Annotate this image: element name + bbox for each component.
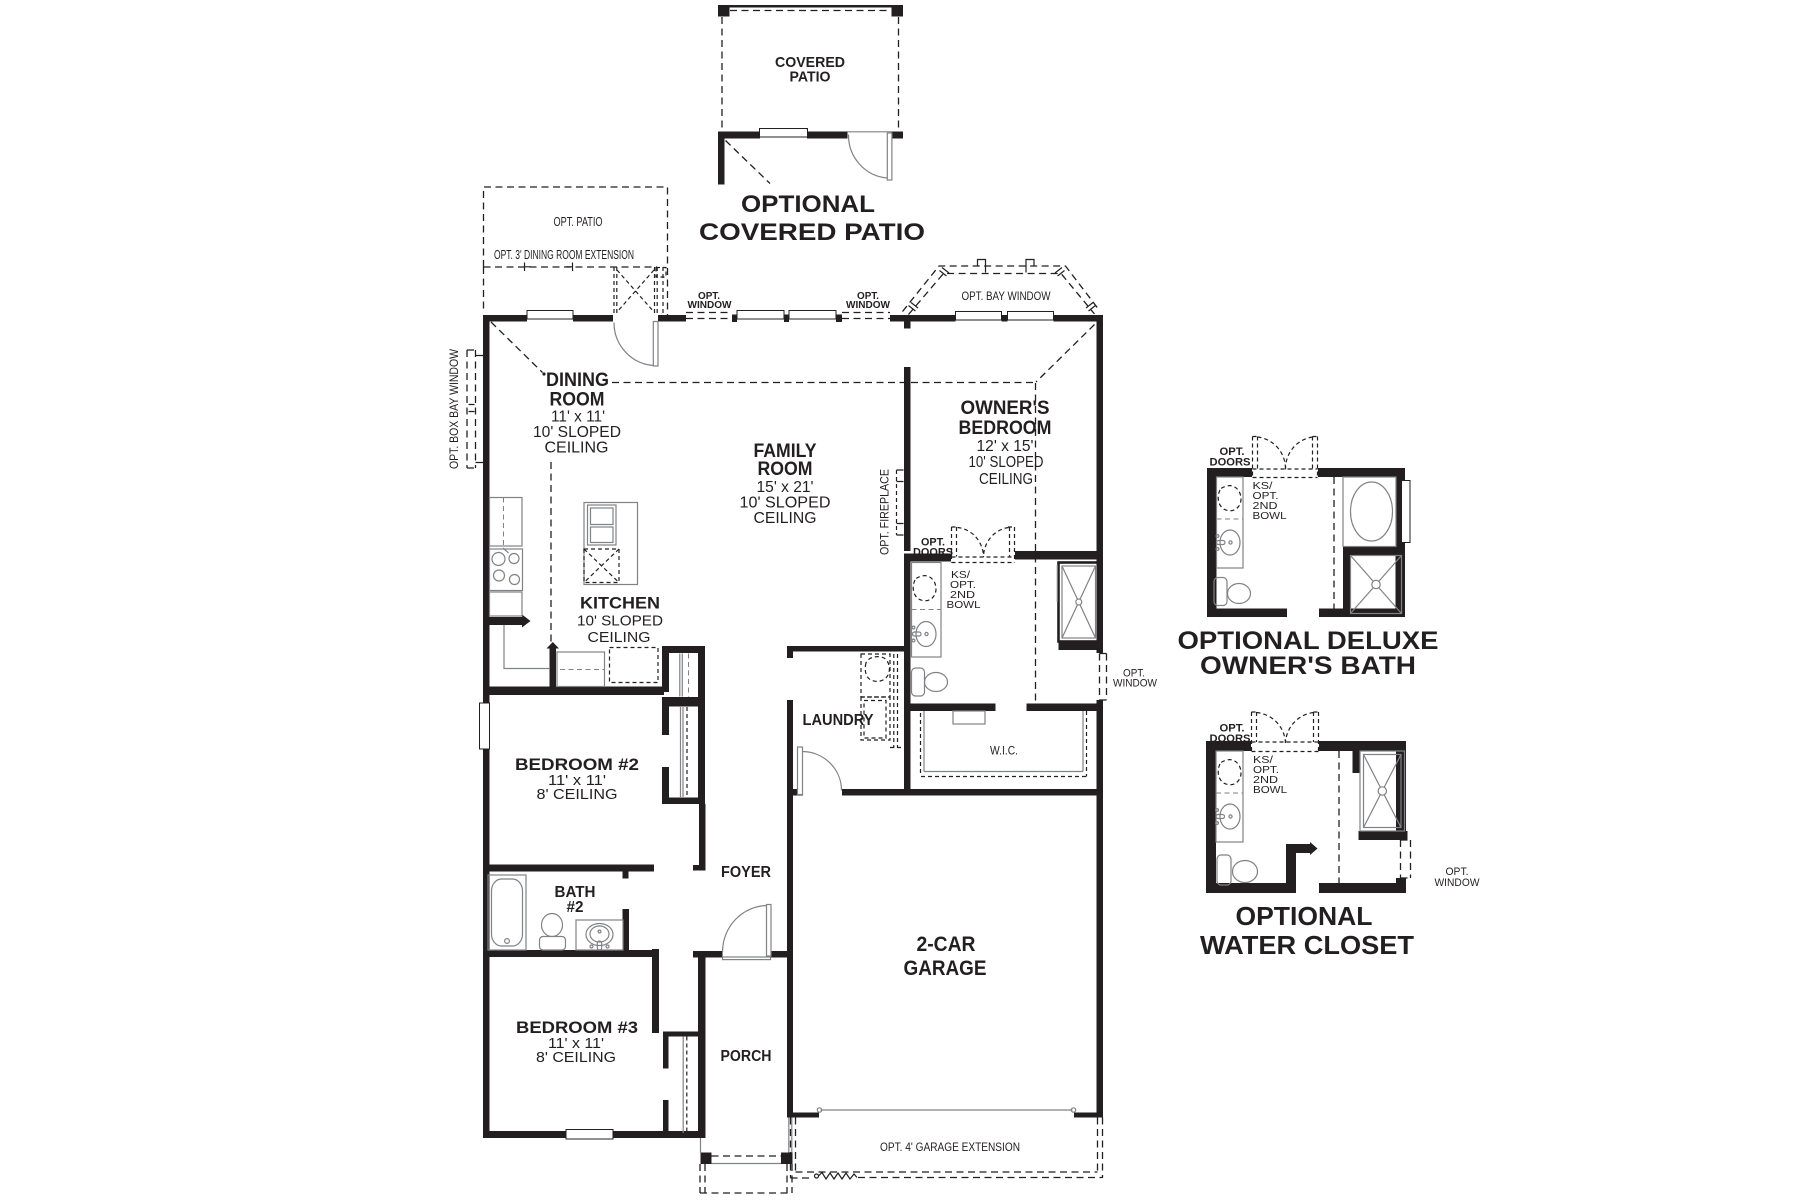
svg-text:CEILING: CEILING bbox=[754, 510, 817, 527]
svg-text:DINING: DINING bbox=[546, 370, 609, 391]
svg-text:11' x 11': 11' x 11' bbox=[551, 409, 605, 426]
svg-text:KITCHEN: KITCHEN bbox=[580, 594, 660, 613]
svg-text:ROOM: ROOM bbox=[758, 459, 813, 480]
svg-text:DOORS: DOORS bbox=[913, 547, 953, 559]
svg-text:PORCH: PORCH bbox=[721, 1048, 772, 1065]
svg-text:OPT. FIREPLACE: OPT. FIREPLACE bbox=[878, 469, 892, 555]
svg-text:OWNER'S BATH: OWNER'S BATH bbox=[1200, 652, 1416, 680]
svg-text:WINDOW: WINDOW bbox=[1113, 678, 1158, 690]
svg-text:ROOM: ROOM bbox=[550, 390, 605, 411]
svg-text:LAUNDRY: LAUNDRY bbox=[803, 712, 874, 729]
svg-text:OPT. 3' DINING ROOM EXTENSION: OPT. 3' DINING ROOM EXTENSION bbox=[494, 248, 634, 262]
svg-text:8' CEILING: 8' CEILING bbox=[536, 1049, 616, 1066]
svg-text:OPT. 4' GARAGE EXTENSION: OPT. 4' GARAGE EXTENSION bbox=[880, 1140, 1020, 1154]
svg-text:2-CAR: 2-CAR bbox=[917, 933, 976, 956]
svg-text:BOWL: BOWL bbox=[1253, 510, 1287, 522]
svg-text:FOYER: FOYER bbox=[721, 864, 771, 881]
svg-text:10' SLOPED: 10' SLOPED bbox=[577, 613, 663, 630]
svg-text:WINDOW: WINDOW bbox=[846, 299, 890, 311]
svg-text:CEILING: CEILING bbox=[545, 440, 609, 457]
svg-text:OPT. BAY WINDOW: OPT. BAY WINDOW bbox=[962, 289, 1052, 303]
svg-text:WINDOW: WINDOW bbox=[688, 299, 732, 311]
svg-text:GARAGE: GARAGE bbox=[904, 957, 987, 980]
svg-text:CEILING: CEILING bbox=[979, 471, 1033, 488]
svg-text:BEDROOM: BEDROOM bbox=[959, 418, 1052, 439]
svg-text:DOORS: DOORS bbox=[1210, 457, 1251, 469]
svg-text:BOWL: BOWL bbox=[1253, 784, 1287, 796]
svg-text:WINDOW: WINDOW bbox=[1435, 877, 1481, 889]
svg-text:OPTIONAL: OPTIONAL bbox=[1236, 901, 1373, 931]
svg-text:OWNER'S: OWNER'S bbox=[961, 398, 1050, 419]
svg-text:W.I.C.: W.I.C. bbox=[990, 746, 1018, 758]
svg-text:OPTIONAL: OPTIONAL bbox=[741, 191, 875, 218]
svg-text:BOWL: BOWL bbox=[947, 599, 981, 611]
svg-text:OPT. BOX BAY WINDOW: OPT. BOX BAY WINDOW bbox=[447, 348, 461, 469]
svg-text:COVERED PATIO: COVERED PATIO bbox=[699, 219, 925, 246]
svg-text:15' x 21': 15' x 21' bbox=[757, 479, 814, 496]
svg-text:10' SLOPED: 10' SLOPED bbox=[969, 454, 1044, 471]
svg-text:CEILING: CEILING bbox=[588, 629, 651, 646]
svg-text:12' x 15': 12' x 15' bbox=[977, 438, 1034, 455]
svg-text:DOORS: DOORS bbox=[1210, 733, 1251, 745]
svg-text:8' CEILING: 8' CEILING bbox=[537, 786, 618, 803]
svg-text:PATIO: PATIO bbox=[790, 69, 831, 86]
svg-text:10' SLOPED: 10' SLOPED bbox=[533, 424, 621, 441]
svg-text:OPTIONAL DELUXE: OPTIONAL DELUXE bbox=[1178, 627, 1439, 655]
svg-text:OPT. PATIO: OPT. PATIO bbox=[554, 214, 603, 229]
svg-text:#2: #2 bbox=[567, 899, 584, 916]
svg-text:10' SLOPED: 10' SLOPED bbox=[740, 495, 831, 512]
svg-text:WATER CLOSET: WATER CLOSET bbox=[1200, 930, 1414, 960]
